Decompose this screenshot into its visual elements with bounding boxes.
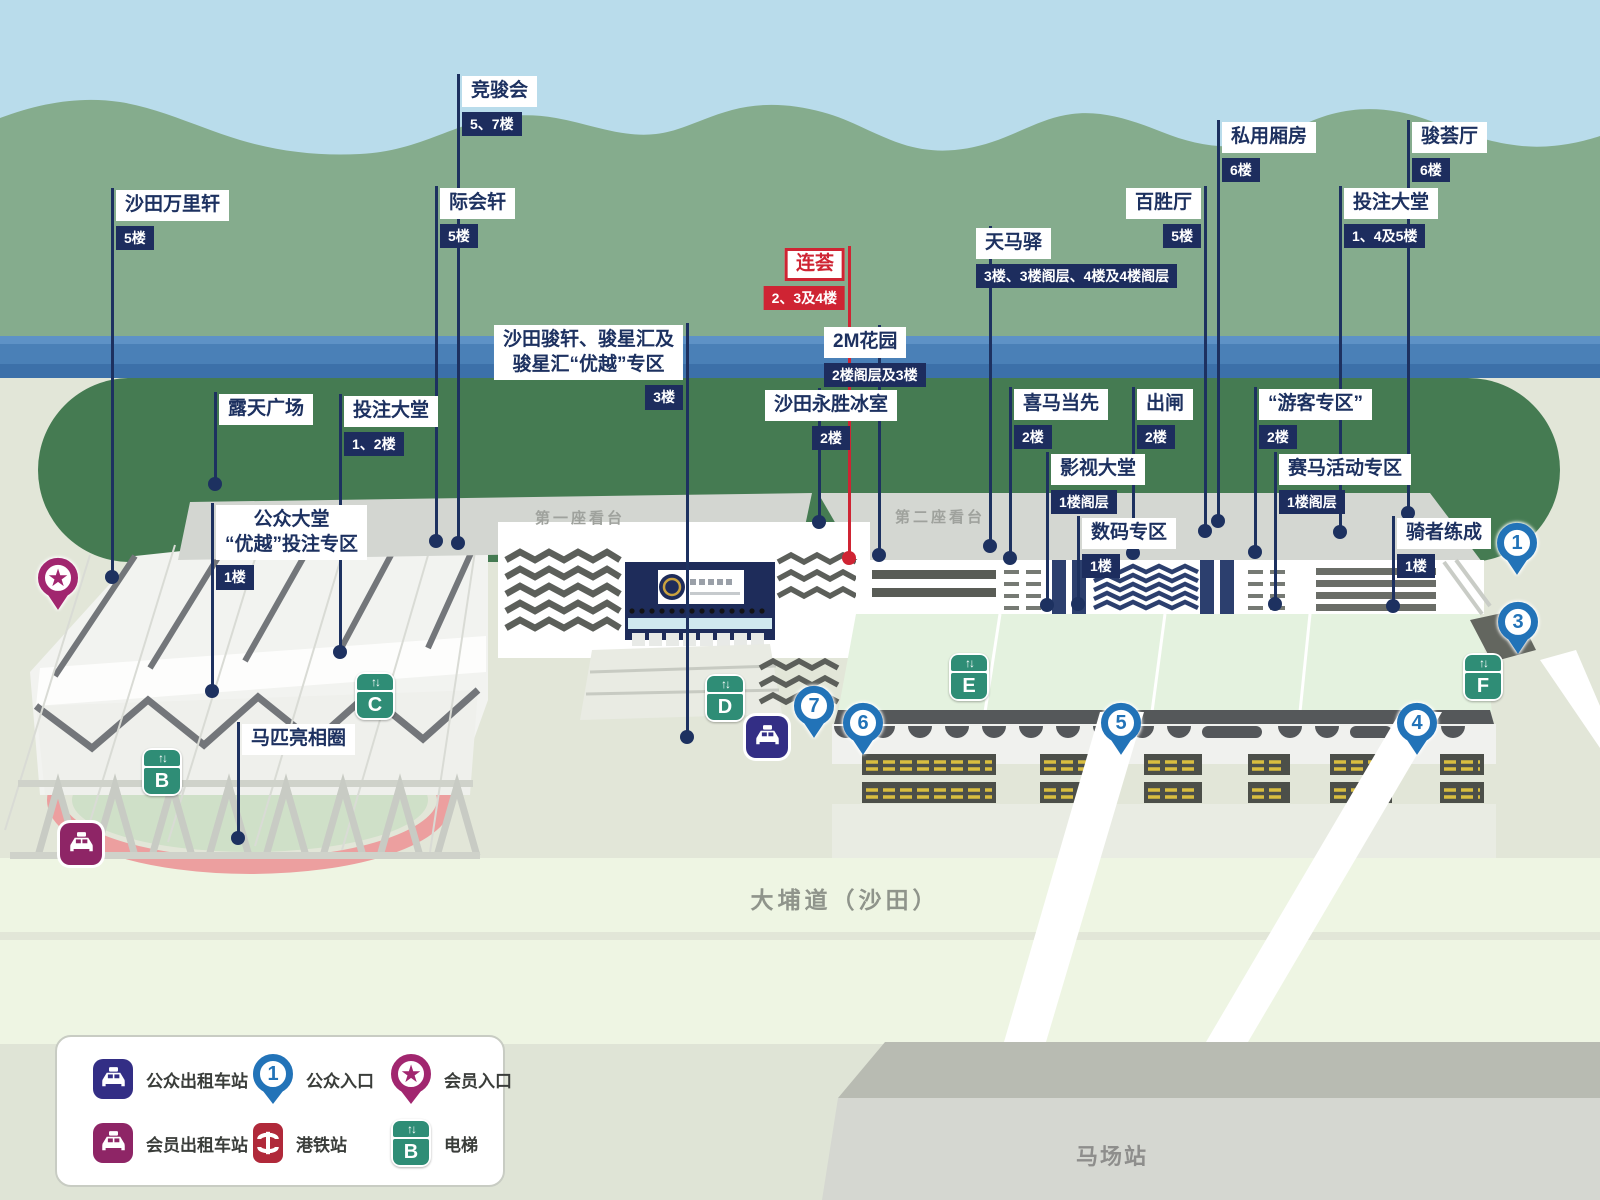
- lift-icon[interactable]: ↑↓B: [391, 1119, 431, 1167]
- callout-label-lian-hui[interactable]: 连荟: [785, 248, 845, 281]
- callout-floor-starting-gate: 2楼: [1137, 425, 1175, 450]
- callout-floor-lian-hui: 2、3及4楼: [764, 286, 845, 311]
- legend: 公众出租车站1公众入口★会员入口会员出租车站港铁站↑↓B电梯: [55, 1035, 505, 1187]
- callout-labels-layer: 竞骏会5、7楼沙田万里轩5楼际会轩5楼私用厢房6楼骏荟厅6楼百胜厅5楼投注大堂1…: [0, 0, 1600, 1200]
- callout-wing-sing-icehouse: 沙田永胜冰室2楼: [765, 390, 897, 450]
- legend-label: 港铁站: [296, 1131, 347, 1156]
- taxi-public-icon[interactable]: [93, 1059, 133, 1099]
- entrance-number: 1: [253, 1054, 293, 1094]
- mtr-icon: [253, 1123, 283, 1163]
- callout-jun-hui-hall: 骏荟厅6楼: [1412, 122, 1487, 182]
- callout-riders-training: 骑者练成1楼: [1397, 518, 1491, 578]
- callout-label-betting-hall-upper[interactable]: 投注大堂: [1344, 188, 1438, 219]
- callout-label-betting-hall-lower[interactable]: 投注大堂: [344, 396, 438, 427]
- updown-arrows-icon: ↑↓: [393, 1121, 429, 1137]
- callout-floor-jun-hui-hall: 6楼: [1412, 158, 1450, 183]
- legend-item-mtr: 港铁站: [253, 1123, 391, 1163]
- callout-floor-riders-training: 1楼: [1397, 554, 1435, 579]
- callout-floor-wing-sing-icehouse: 2楼: [812, 426, 850, 451]
- callout-floor-digital-zone: 1楼: [1082, 554, 1120, 579]
- legend-item-taxi-member: 会员出租车站: [93, 1123, 253, 1163]
- callout-public-hall-premier: 公众大堂 “优越”投注专区1楼: [216, 505, 367, 590]
- legend-label: 会员出租车站: [146, 1131, 248, 1156]
- callout-label-starting-gate[interactable]: 出闸: [1137, 389, 1193, 420]
- callout-floor-tv-hall: 1楼阁层: [1051, 490, 1117, 515]
- callout-starting-gate: 出闸2楼: [1137, 389, 1193, 449]
- callout-floor-winning-ahead: 2楼: [1014, 425, 1052, 450]
- taxi-member-icon[interactable]: [93, 1123, 133, 1163]
- callout-label-tourist-zone[interactable]: “游客专区”: [1259, 389, 1372, 420]
- callout-tourist-zone: “游客专区”2楼: [1259, 389, 1372, 449]
- callout-label-public-hall-premier[interactable]: 公众大堂 “优越”投注专区: [216, 505, 367, 560]
- callout-floor-jockey-club: 5、7楼: [462, 112, 522, 137]
- legend-item-member-pin: ★会员入口: [391, 1054, 531, 1104]
- callout-shatin-gallery-premier: 沙田骏轩、骏星汇及 骏星汇“优越”专区3楼: [494, 325, 683, 410]
- callout-floor-public-hall-premier: 1楼: [216, 565, 254, 590]
- callout-shatin-panorama: 沙田万里轩5楼: [116, 190, 229, 250]
- racecourse-map: 第一座看台 第二座看台 大埔道（沙田） 马场站 134567★↑↓B↑↓C↑↓D…: [0, 0, 1600, 1200]
- callout-label-2m-garden[interactable]: 2M花园: [824, 327, 906, 358]
- callout-floor-2m-garden: 2楼阁层及3楼: [824, 363, 926, 388]
- callout-label-shatin-panorama[interactable]: 沙田万里轩: [116, 190, 229, 221]
- callout-racing-activity-zone: 赛马活动专区1楼阁层: [1279, 454, 1411, 514]
- callout-label-riders-training[interactable]: 骑者练成: [1397, 518, 1491, 549]
- legend-label: 会员入口: [444, 1067, 512, 1092]
- callout-winning-ahead: 喜马当先2楼: [1014, 389, 1108, 449]
- callout-label-tv-hall[interactable]: 影视大堂: [1051, 454, 1145, 485]
- callout-floor-tourist-zone: 2楼: [1259, 425, 1297, 450]
- legend-item-entrance-pin: 1公众入口: [253, 1054, 391, 1104]
- legend-label: 公众入口: [306, 1067, 374, 1092]
- callout-floor-gathering-pavilion: 5楼: [440, 224, 478, 249]
- callout-floor-shatin-panorama: 5楼: [116, 226, 154, 251]
- callout-label-winning-ahead[interactable]: 喜马当先: [1014, 389, 1108, 420]
- legend-item-lift: ↑↓B电梯: [391, 1119, 531, 1167]
- callout-lian-hui: 连荟2、3及4楼: [764, 248, 845, 310]
- callout-label-parade-ring[interactable]: 马匹亮相圈: [242, 724, 355, 755]
- callout-floor-racing-activity-zone: 1楼阁层: [1279, 490, 1345, 515]
- callout-betting-hall-upper: 投注大堂1、4及5楼: [1344, 188, 1438, 248]
- callout-betting-hall-lower: 投注大堂1、2楼: [344, 396, 438, 456]
- callout-label-racing-activity-zone[interactable]: 赛马活动专区: [1279, 454, 1411, 485]
- callout-floor-private-boxes: 6楼: [1222, 158, 1260, 183]
- callout-label-wing-sing-icehouse[interactable]: 沙田永胜冰室: [765, 390, 897, 421]
- callout-open-plaza: 露天广场: [219, 394, 313, 425]
- callout-label-gathering-pavilion[interactable]: 际会轩: [440, 188, 515, 219]
- callout-digital-zone: 数码专区1楼: [1082, 518, 1176, 578]
- callout-label-jockey-club[interactable]: 竞骏会: [462, 76, 537, 107]
- callout-label-jun-hui-hall[interactable]: 骏荟厅: [1412, 122, 1487, 153]
- lift-letter: B: [393, 1139, 429, 1165]
- callout-private-boxes: 私用厢房6楼: [1222, 122, 1316, 182]
- callout-label-hundred-wins-hall[interactable]: 百胜厅: [1126, 188, 1201, 219]
- callout-label-shatin-gallery-premier[interactable]: 沙田骏轩、骏星汇及 骏星汇“优越”专区: [494, 325, 683, 380]
- callout-label-open-plaza[interactable]: 露天广场: [219, 394, 313, 425]
- legend-label: 公众出租车站: [146, 1067, 248, 1092]
- callout-floor-shatin-gallery-premier: 3楼: [645, 385, 683, 410]
- callout-tin-ma-station: 天马驿3楼、3楼阁层、4楼及4楼阁层: [976, 228, 1177, 288]
- legend-item-taxi-public: 公众出租车站: [93, 1059, 253, 1099]
- callout-floor-tin-ma-station: 3楼、3楼阁层、4楼及4楼阁层: [976, 264, 1177, 289]
- callout-2m-garden: 2M花园2楼阁层及3楼: [824, 327, 926, 387]
- legend-label: 电梯: [444, 1131, 478, 1156]
- callout-jockey-club: 竞骏会5、7楼: [462, 76, 537, 136]
- star-icon: ★: [391, 1054, 431, 1094]
- callout-label-digital-zone[interactable]: 数码专区: [1082, 518, 1176, 549]
- callout-label-tin-ma-station[interactable]: 天马驿: [976, 228, 1051, 259]
- callout-gathering-pavilion: 际会轩5楼: [440, 188, 515, 248]
- callout-parade-ring: 马匹亮相圈: [242, 724, 355, 755]
- callout-tv-hall: 影视大堂1楼阁层: [1051, 454, 1145, 514]
- entrance-pin[interactable]: 1: [253, 1054, 293, 1104]
- callout-label-private-boxes[interactable]: 私用厢房: [1222, 122, 1316, 153]
- member-entrance-pin[interactable]: ★: [391, 1054, 431, 1104]
- callout-floor-betting-hall-upper: 1、4及5楼: [1344, 224, 1425, 249]
- callout-floor-betting-hall-lower: 1、2楼: [344, 432, 404, 457]
